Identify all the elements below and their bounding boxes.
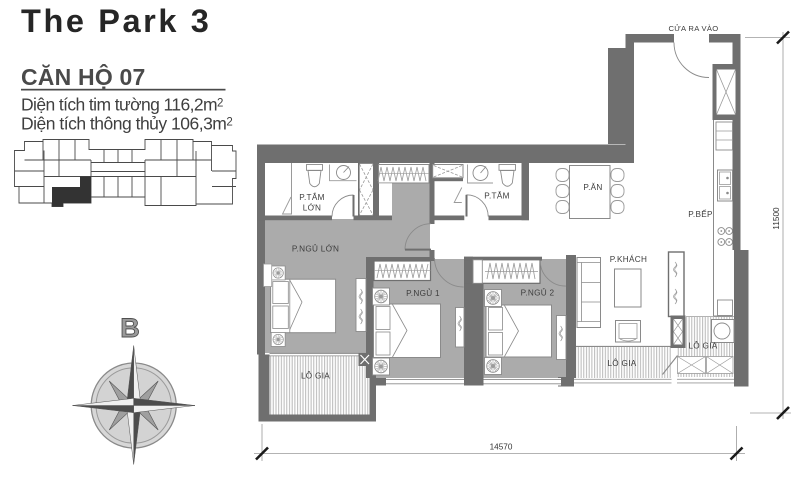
svg-text:P.NGỦ LỚN: P.NGỦ LỚN [292,243,339,254]
svg-text:CỬA RA VÀO: CỬA RA VÀO [668,24,718,33]
svg-text:B: B [120,313,140,343]
svg-text:P.NGỦ 2: P.NGỦ 2 [521,287,555,298]
svg-text:P.TẮM: P.TẮM [484,191,509,201]
svg-text:P.NGỦ 1: P.NGỦ 1 [406,287,440,298]
svg-text:LÔ GIA: LÔ GIA [688,341,717,351]
svg-text:Diện tích tim tường 116,2m2: Diện tích tim tường 116,2m2 [21,95,223,115]
svg-text:P.ĂN: P.ĂN [583,182,602,192]
svg-text:CĂN HỘ 07: CĂN HỘ 07 [21,63,146,90]
svg-text:The Park 3: The Park 3 [21,3,211,39]
svg-text:LÔ GIA: LÔ GIA [301,371,330,381]
svg-text:P.KHÁCH: P.KHÁCH [610,254,647,264]
svg-text:LỚN: LỚN [303,203,321,213]
svg-text:P.TẮM: P.TẮM [299,192,324,202]
svg-text:Diện tích thông thủy 106,3m2: Diện tích thông thủy 106,3m2 [21,114,232,134]
svg-text:11500: 11500 [772,207,781,230]
svg-text:P.BẾP: P.BẾP [688,209,713,219]
svg-text:LÔ GIA: LÔ GIA [607,358,636,368]
svg-text:14570: 14570 [490,443,513,452]
